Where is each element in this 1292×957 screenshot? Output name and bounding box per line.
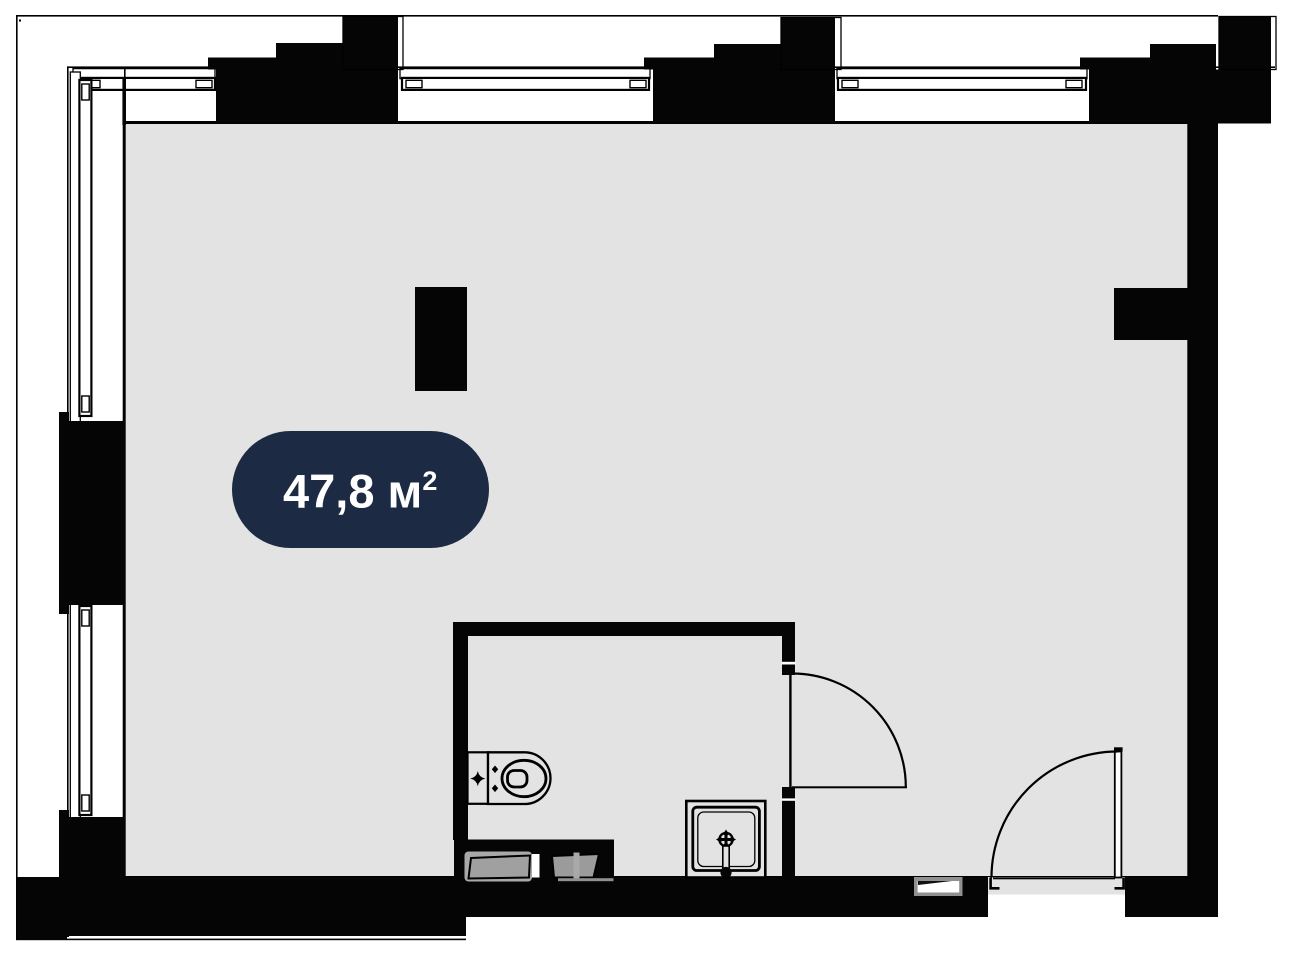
- svg-text:47,8 м2: 47,8 м2: [283, 465, 437, 518]
